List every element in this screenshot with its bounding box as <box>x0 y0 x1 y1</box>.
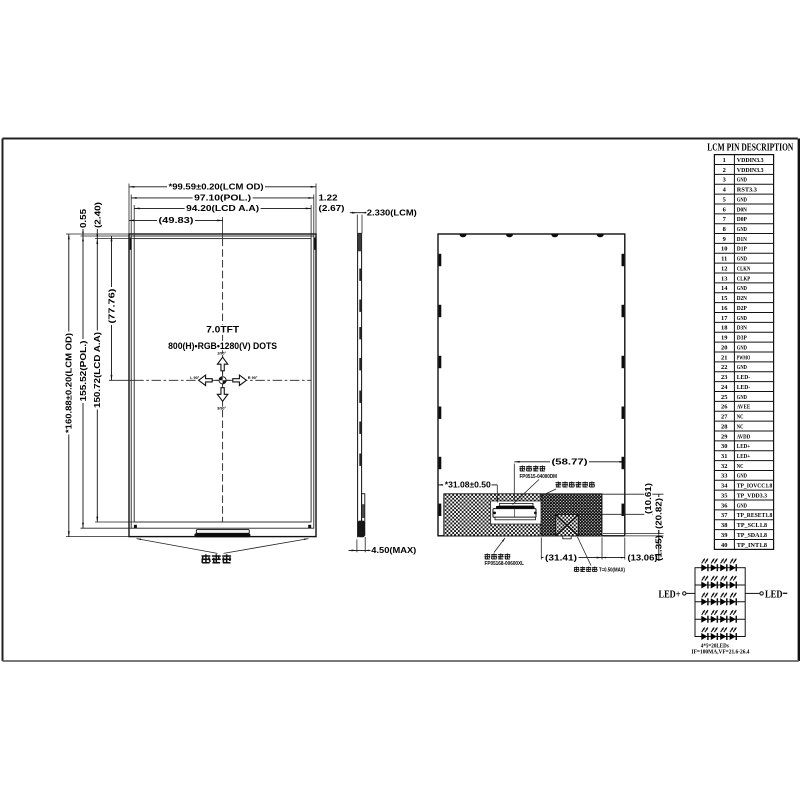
svg-text:14: 14 <box>721 285 728 292</box>
svg-text:D0P: D0P <box>737 216 747 223</box>
svg-text:27: 27 <box>721 414 728 421</box>
svg-text:30: 30 <box>721 443 727 450</box>
svg-text:3/90°: 3/90° <box>217 406 226 410</box>
svg-text:3: 3 <box>723 177 726 184</box>
svg-text:TP_SCL1.8: TP_SCL1.8 <box>737 522 767 529</box>
svg-text:AVDD: AVDD <box>737 433 751 440</box>
svg-text:97.10(POL.): 97.10(POL.) <box>194 194 251 203</box>
svg-text:LED+: LED+ <box>737 443 751 450</box>
svg-text:31: 31 <box>721 453 727 460</box>
svg-text:LCM PIN DESCRIPTION: LCM PIN DESCRIPTION <box>707 142 794 153</box>
svg-text:(58.77): (58.77) <box>552 458 588 467</box>
svg-text:155.52(POL.): 155.52(POL.) <box>79 340 88 401</box>
svg-text:(77.76): (77.76) <box>107 288 116 323</box>
svg-text:32: 32 <box>721 463 727 470</box>
svg-text:*160.88±0.20(LCM OD): *160.88±0.20(LCM OD) <box>65 333 74 433</box>
svg-text:25: 25 <box>721 394 727 401</box>
svg-text:D2P: D2P <box>737 305 747 312</box>
svg-text:34: 34 <box>721 483 728 490</box>
svg-text:LED: LED <box>765 589 783 600</box>
svg-text:13: 13 <box>721 275 727 282</box>
svg-text:19: 19 <box>721 335 727 342</box>
svg-text:15: 15 <box>721 295 727 302</box>
svg-text:(49.83): (49.83) <box>159 216 194 225</box>
svg-text:28: 28 <box>721 423 727 430</box>
svg-text:(10.61): (10.61) <box>644 483 653 514</box>
svg-text:18: 18 <box>721 325 727 332</box>
svg-text:D2N: D2N <box>737 295 747 302</box>
svg-text:R 90°: R 90° <box>248 376 258 380</box>
svg-text:*31.08±0.50: *31.08±0.50 <box>445 481 491 490</box>
svg-text:26: 26 <box>721 404 728 411</box>
svg-text:T=0.50(MAX): T=0.50(MAX) <box>599 568 625 574</box>
svg-text:CLKP: CLKP <box>737 275 750 282</box>
svg-text:2.330(LCM): 2.330(LCM) <box>367 209 417 218</box>
svg-text:(2.40): (2.40) <box>93 202 102 228</box>
svg-text:*99.59±0.20(LCM OD): *99.59±0.20(LCM OD) <box>169 183 264 192</box>
svg-text:GND: GND <box>737 473 747 480</box>
svg-text:16: 16 <box>721 305 728 312</box>
svg-text:FP05168-00600XL: FP05168-00600XL <box>485 561 525 567</box>
svg-text:9: 9 <box>723 236 726 243</box>
svg-text:VDDIN3.3: VDDIN3.3 <box>737 167 764 174</box>
svg-text:GND: GND <box>737 364 747 371</box>
svg-text:39: 39 <box>721 532 727 539</box>
svg-text:PWMO: PWMO <box>737 354 750 361</box>
svg-text:0.55: 0.55 <box>79 208 88 228</box>
svg-text:1.22: 1.22 <box>319 194 339 203</box>
svg-text:GND: GND <box>737 256 747 263</box>
svg-text:36: 36 <box>721 502 728 509</box>
svg-text:(2.67): (2.67) <box>319 204 345 213</box>
svg-text:37: 37 <box>721 512 728 519</box>
svg-text:NC: NC <box>737 423 744 430</box>
svg-text:29: 29 <box>721 433 727 440</box>
svg-text:4.50(MAX): 4.50(MAX) <box>371 546 416 555</box>
svg-text:1/90°: 1/90° <box>217 351 226 355</box>
svg-text:D3P: D3P <box>737 335 747 342</box>
svg-text:12: 12 <box>721 265 727 272</box>
svg-text:23: 23 <box>721 374 727 381</box>
svg-text:GND: GND <box>737 315 747 322</box>
svg-text:L 90°: L 90° <box>190 376 200 380</box>
svg-text:D1N: D1N <box>737 236 747 243</box>
svg-text:GND: GND <box>737 196 747 203</box>
svg-text:D0N: D0N <box>737 206 747 213</box>
svg-text:22: 22 <box>721 364 727 371</box>
svg-text:(13.06): (13.06) <box>628 553 658 562</box>
svg-text:800(H)•RGB•1280(V) DOTS: 800(H)•RGB•1280(V) DOTS <box>168 341 277 351</box>
svg-text:GND: GND <box>737 226 747 233</box>
svg-text:8: 8 <box>723 226 726 233</box>
svg-text:LED+: LED+ <box>737 453 751 460</box>
svg-text:40: 40 <box>721 542 727 549</box>
svg-text:D3N: D3N <box>737 325 747 332</box>
svg-text:2: 2 <box>723 167 726 174</box>
svg-text:LED+: LED+ <box>659 589 681 600</box>
svg-text:24: 24 <box>721 384 728 391</box>
svg-text:TP_RESET1.8: TP_RESET1.8 <box>737 512 773 519</box>
svg-text:TP_VDD3.3: TP_VDD3.3 <box>737 492 767 499</box>
svg-text:94.20(LCD A.A): 94.20(LCD A.A) <box>186 204 259 213</box>
svg-text:5: 5 <box>723 196 726 203</box>
svg-text:NC: NC <box>737 463 744 470</box>
svg-text:20: 20 <box>721 344 727 351</box>
svg-text:LED-: LED- <box>737 374 750 381</box>
svg-text:TP_SDA1.8: TP_SDA1.8 <box>737 532 767 539</box>
svg-text:FP0515-04000DM: FP0515-04000DM <box>520 474 558 480</box>
svg-text:TP_INT1.8: TP_INT1.8 <box>737 542 767 549</box>
svg-text:NC: NC <box>737 414 744 421</box>
svg-text:AVEE: AVEE <box>737 404 750 411</box>
svg-text:(31.41): (31.41) <box>545 553 577 562</box>
svg-text:21: 21 <box>721 354 727 361</box>
svg-text:GND: GND <box>737 285 747 292</box>
svg-text:35: 35 <box>721 492 727 499</box>
svg-text:TP_IOVCC1.8: TP_IOVCC1.8 <box>737 483 773 490</box>
svg-text:GND: GND <box>737 502 747 509</box>
svg-text:150.72(LCD A.A): 150.72(LCD A.A) <box>93 332 102 408</box>
svg-text:10: 10 <box>721 246 727 253</box>
svg-text:CLKN: CLKN <box>737 265 751 272</box>
svg-text:IF=100MA,VF=21.6-26.4: IF=100MA,VF=21.6-26.4 <box>692 649 750 656</box>
svg-text:RST3.3: RST3.3 <box>737 187 757 194</box>
svg-text:33: 33 <box>721 473 727 480</box>
svg-text:GND: GND <box>737 394 747 401</box>
svg-text:11: 11 <box>721 256 727 263</box>
svg-text:7.0TFT: 7.0TFT <box>206 324 240 334</box>
svg-text:LED-: LED- <box>737 384 750 391</box>
svg-text:17: 17 <box>721 315 728 322</box>
svg-text:38: 38 <box>721 522 727 529</box>
svg-text:D1P: D1P <box>737 246 747 253</box>
svg-text:VDDIN3.3: VDDIN3.3 <box>737 157 764 164</box>
svg-text:GND: GND <box>737 344 747 351</box>
svg-text:GND: GND <box>737 177 747 184</box>
svg-text:1: 1 <box>723 157 726 164</box>
svg-text:(20.82): (20.82) <box>655 498 664 529</box>
